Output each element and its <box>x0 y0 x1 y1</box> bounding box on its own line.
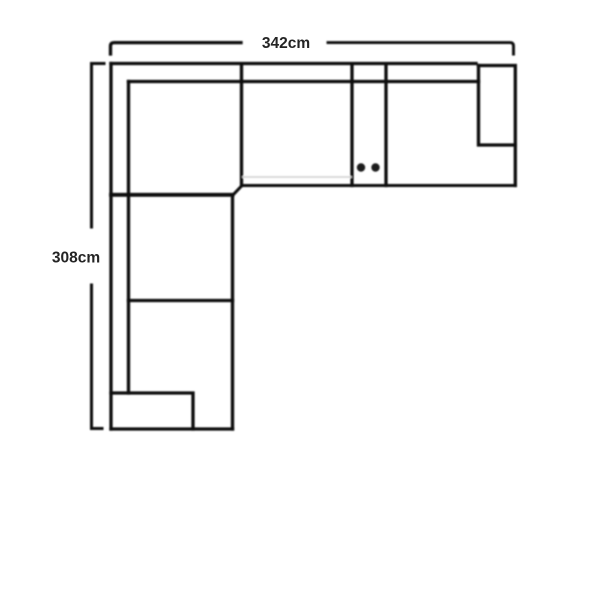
svg-text:342cm: 342cm <box>262 35 310 52</box>
svg-text:308cm: 308cm <box>52 249 100 266</box>
